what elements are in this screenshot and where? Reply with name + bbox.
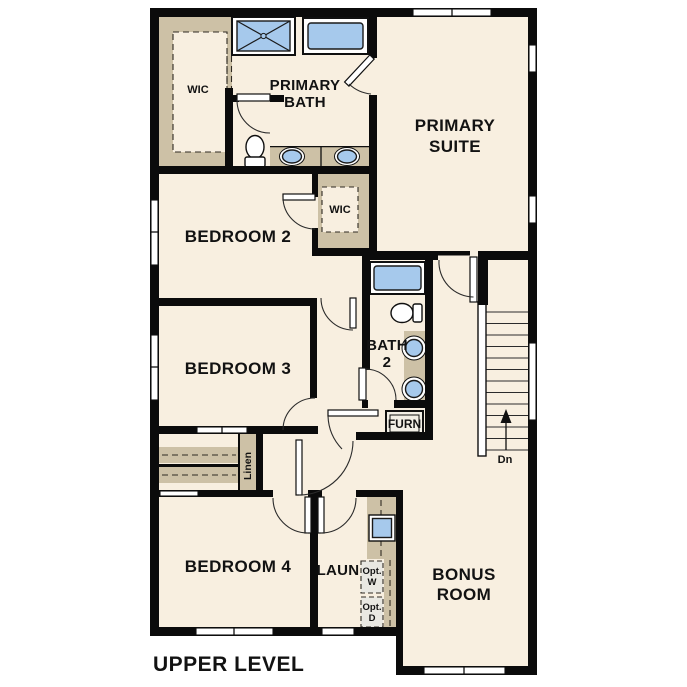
label-bonus-2: ROOM (437, 585, 491, 604)
label-bedroom3: BEDROOM 3 (185, 359, 292, 378)
label-bath2-1: BATH (366, 337, 408, 354)
label-opt-washer-2: W (368, 577, 377, 588)
label-bath2-2: 2 (383, 354, 392, 371)
upper-level-floorplan: WIC PRIMARY BATH PRIMARY SUITE BEDROOM 2… (0, 0, 687, 687)
laundry-sink-icon (369, 515, 395, 541)
label-bedroom4: BEDROOM 4 (185, 557, 292, 576)
label-furnace: FURN (388, 417, 421, 431)
label-opt-washer-1: Opt. (363, 566, 382, 577)
label-primary-bath-2: BATH (284, 94, 326, 111)
label-primary-suite-1: PRIMARY (415, 116, 496, 135)
bypass-door-bedroom4-closet (160, 491, 198, 496)
label-laundry: LAUN (317, 562, 360, 579)
label-primary-wic: WIC (187, 84, 208, 96)
label-primary-suite-2: SUITE (429, 137, 481, 156)
stair-handrail (478, 302, 486, 456)
label-linen: Linen (242, 452, 254, 480)
bathtub-icon (303, 18, 368, 54)
shower-icon (232, 17, 295, 55)
label-opt-dryer-1: Opt. (363, 602, 382, 613)
label-bedroom2: BEDROOM 2 (185, 227, 292, 246)
floorplan-page: WIC PRIMARY BATH PRIMARY SUITE BEDROOM 2… (0, 0, 687, 687)
label-bedroom2-wic: WIC (329, 204, 350, 216)
label-stairs-down: Dn (498, 454, 513, 466)
label-bonus-1: BONUS (432, 565, 495, 584)
toilet2-icon (391, 304, 422, 323)
toilet-icon (245, 136, 265, 168)
page-title: UPPER LEVEL (153, 653, 304, 676)
label-opt-dryer-2: D (369, 613, 376, 624)
label-primary-bath-1: PRIMARY (270, 77, 341, 94)
bathtub2-icon (370, 262, 425, 294)
